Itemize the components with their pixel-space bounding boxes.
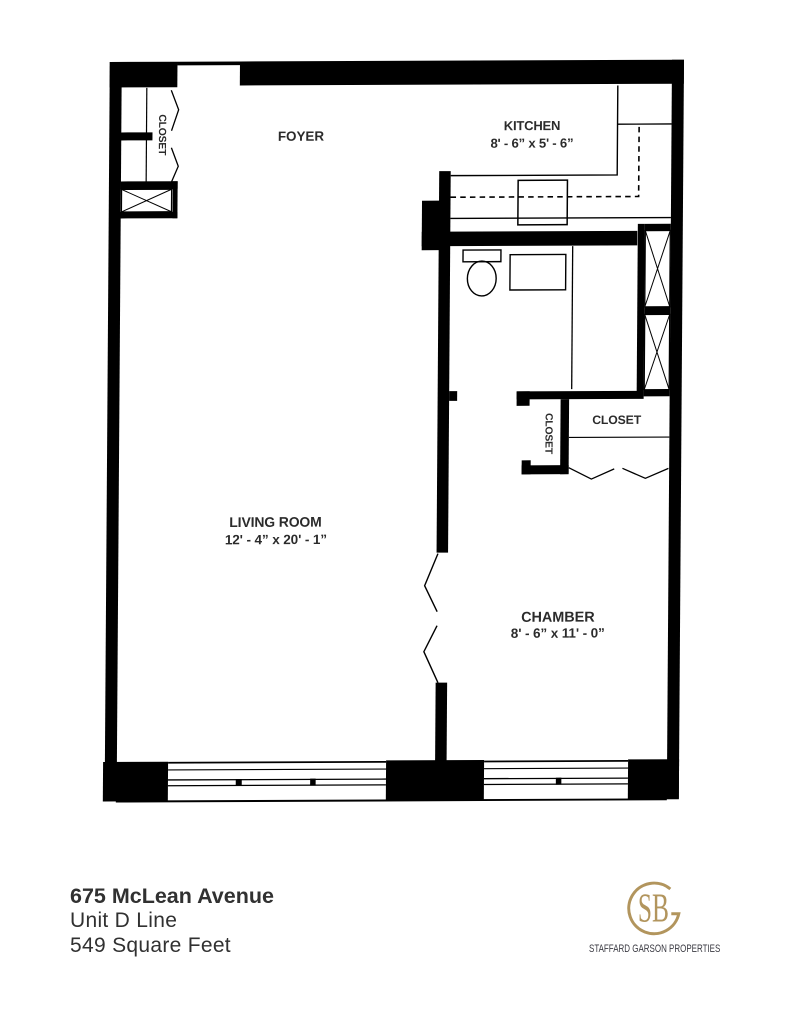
svg-text:LIVING ROOM: LIVING ROOM — [229, 514, 321, 530]
svg-text:8' - 6” x 11' - 0”: 8' - 6” x 11' - 0” — [511, 626, 605, 641]
svg-text:SB: SB — [638, 887, 669, 931]
svg-text:CLOSET: CLOSET — [592, 413, 642, 427]
svg-text:FOYER: FOYER — [278, 129, 325, 144]
svg-text:CHAMBER: CHAMBER — [521, 610, 595, 626]
svg-text:12' - 4” x 20' - 1”: 12' - 4” x 20' - 1” — [225, 532, 327, 547]
svg-text:CLOSET: CLOSET — [156, 114, 167, 156]
svg-text:KITCHEN: KITCHEN — [504, 118, 560, 133]
svg-text:CLOSET: CLOSET — [542, 413, 553, 455]
svg-text:8' - 6” x 5' - 6”: 8' - 6” x 5' - 6” — [490, 135, 573, 150]
